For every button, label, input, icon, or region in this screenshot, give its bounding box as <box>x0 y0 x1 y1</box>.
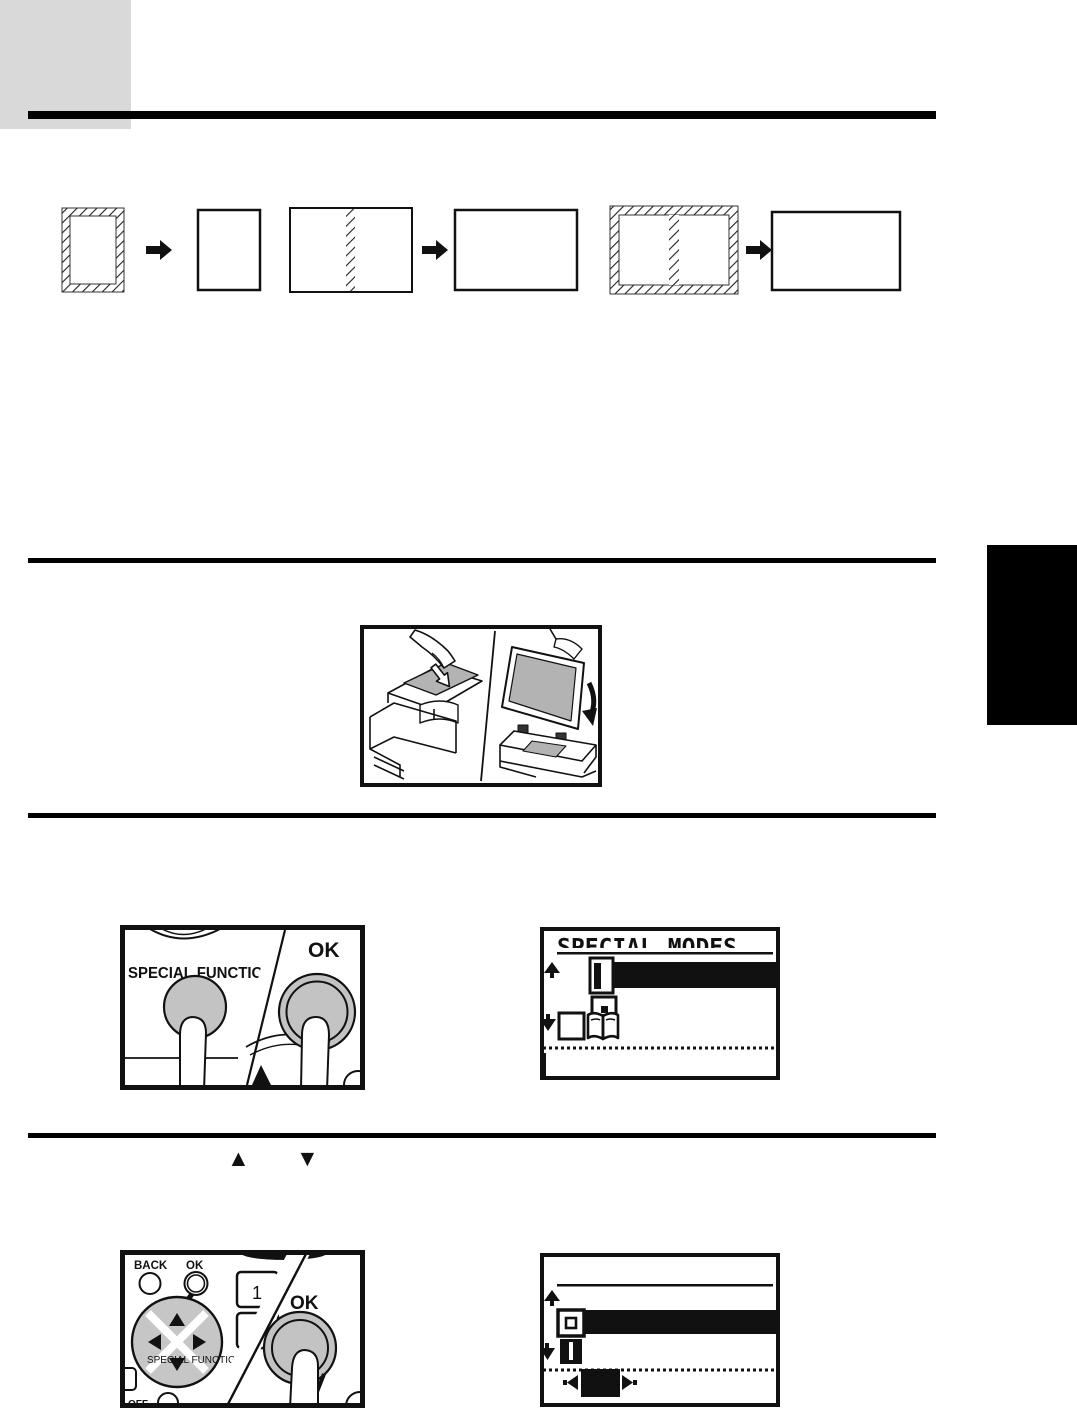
original-landscape-hatched-split <box>610 206 738 294</box>
header-gray-block <box>0 0 131 129</box>
section-rule-2 <box>28 813 936 818</box>
lcd-screen-figure-1: SPECIAL MODES <box>540 927 780 1080</box>
section-rule-1 <box>28 558 936 563</box>
selected-option-box <box>581 1369 620 1397</box>
lcd-screen-figure-2 <box>540 1253 780 1407</box>
up-key-glyph: ▲ <box>227 1147 250 1170</box>
chapter-side-tab <box>987 545 1077 725</box>
original-portrait-hatched <box>62 208 124 292</box>
arrow-pad <box>132 1297 222 1387</box>
section-rule-3 <box>28 1133 936 1138</box>
special-function-key-figure: SPECIAL FUNCTION OK <box>120 925 365 1090</box>
arrow-right-icon <box>422 240 448 260</box>
copy-portrait <box>198 210 260 290</box>
down-key-glyph: ▼ <box>296 1147 319 1170</box>
special-function-key-label-small: SPECIAL FUNCTION <box>147 1355 243 1366</box>
book-spine-icon <box>560 1339 582 1364</box>
selected-row-highlight <box>582 1310 778 1334</box>
dual-page-copy-icon <box>588 1013 618 1039</box>
ok-key-label: OK <box>186 1260 204 1272</box>
finger-icon <box>180 1017 206 1090</box>
copy-modes-diagram <box>40 195 940 307</box>
ok-key-label-large: OK <box>290 1293 319 1314</box>
svg-text:1: 1 <box>252 1283 262 1303</box>
selected-row-highlight <box>611 962 778 988</box>
document-placement-figure <box>360 625 602 787</box>
manual-page: SPECIAL FUNCTION OK SPECIAL MODES <box>0 0 1077 1413</box>
chapter-title-rule <box>28 111 936 119</box>
copy-landscape <box>455 210 577 290</box>
ok-key-label: OK <box>308 939 340 962</box>
back-button <box>140 1273 161 1294</box>
back-key-label: BACK <box>134 1260 168 1272</box>
arrow-right-icon <box>146 240 172 260</box>
finger-icon <box>301 1017 329 1090</box>
blank-checkbox-icon <box>559 1013 584 1039</box>
arrow-right-icon <box>746 240 772 260</box>
margin-shift-icon <box>590 958 613 993</box>
original-landscape-center-split <box>290 208 412 292</box>
finger-icon <box>290 1350 318 1408</box>
navigation-keys-figure: BACK OK 1 4 T SPECIAL FUNCTION OFF <box>120 1250 365 1408</box>
erase-icon-outline <box>558 1310 584 1336</box>
copy-landscape <box>772 212 900 290</box>
